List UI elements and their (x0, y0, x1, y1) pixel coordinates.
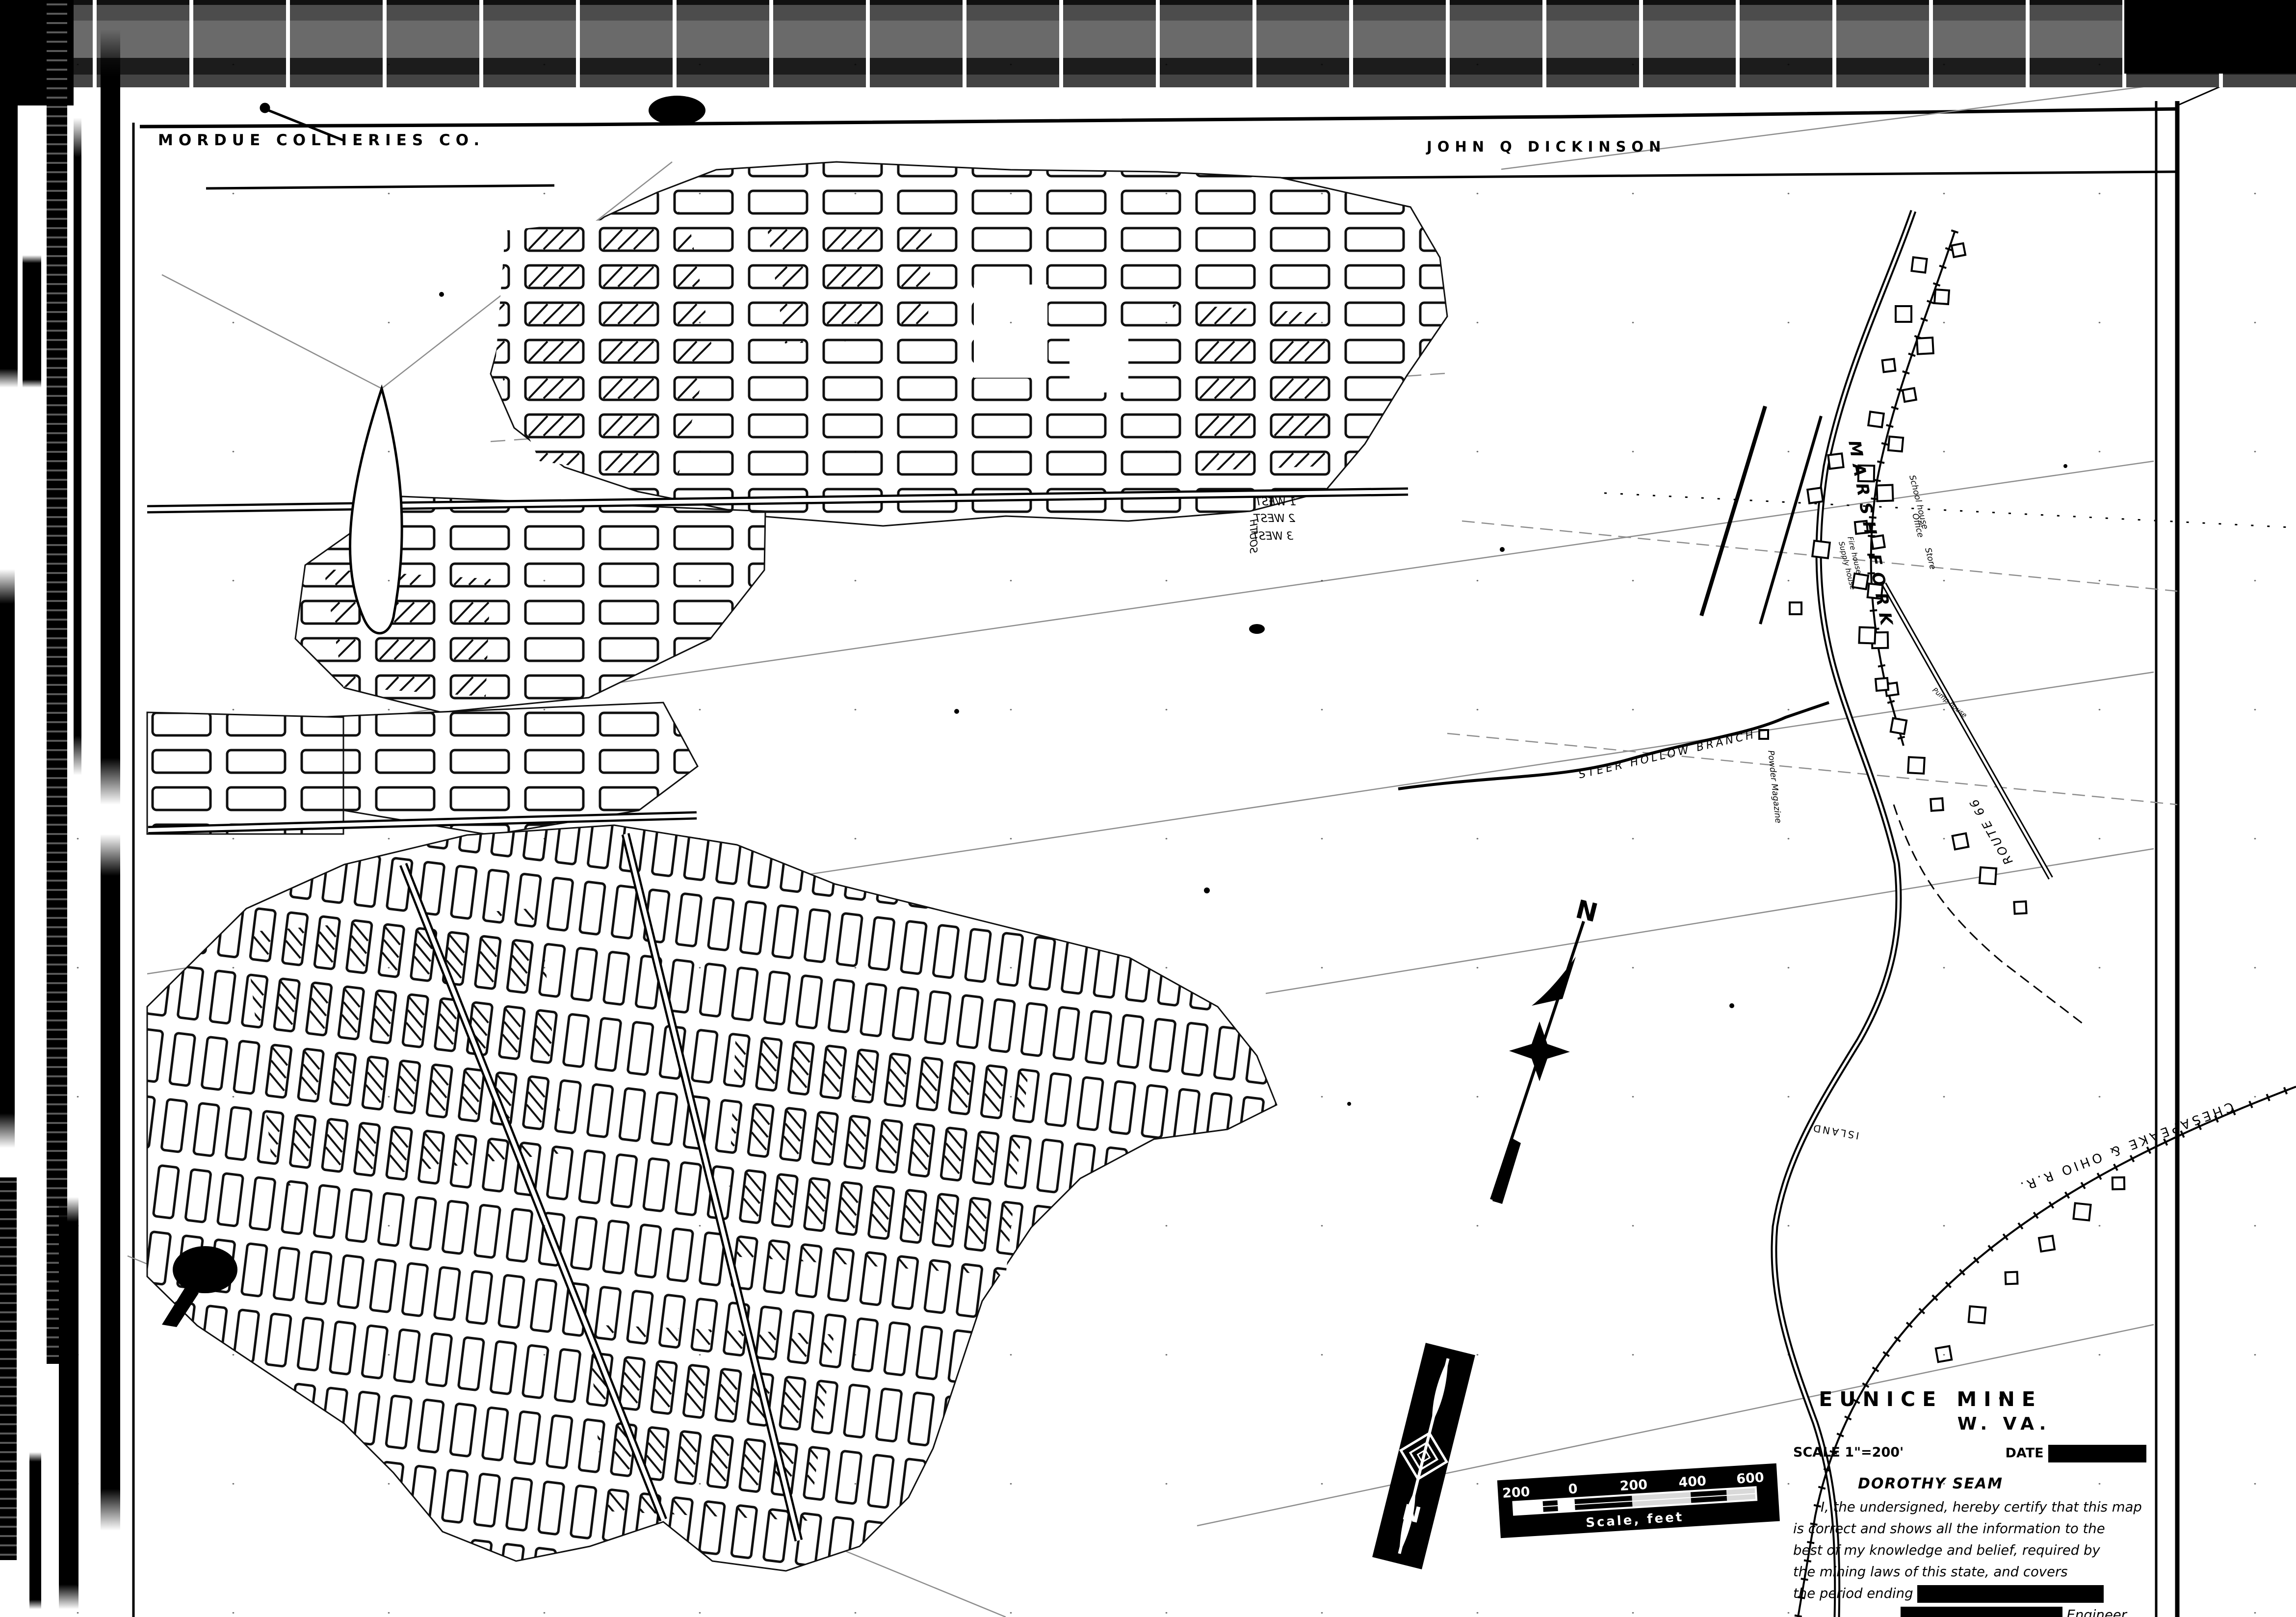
building-square (1876, 678, 1888, 691)
map-labels: MARSH FORK STEER HOLLOW BRANCH CHESAPEAK… (1248, 439, 2236, 1195)
film-edge-bar (23, 255, 41, 388)
building-square (1917, 338, 1933, 354)
scale-label: SCALE 1"=200' (1793, 1445, 1904, 1462)
building-square (1891, 718, 1906, 734)
film-edge-bar (101, 29, 120, 805)
building-square (1790, 602, 1801, 614)
building-square (1807, 488, 1823, 503)
scale-bar: 200 0 200 400 600 Scale, feet (1497, 1463, 1780, 1539)
compass-stamp: N (1372, 1343, 1475, 1569)
route-66-road (1884, 584, 2051, 878)
building-square (1859, 627, 1875, 643)
cert-line: best of my knowledge and belief, require… (1793, 1542, 2100, 1558)
building-square (1980, 867, 1996, 884)
contour-lens (350, 389, 402, 633)
building-square (1934, 289, 1949, 304)
building-square (1903, 388, 1916, 402)
film-edge-bar (47, 0, 67, 1364)
building-square (1877, 485, 1893, 501)
cert-line: I, the undersigned, hereby certify that … (1821, 1499, 2142, 1515)
film-edge-bar (29, 1452, 41, 1609)
film-edge-bar (0, 74, 18, 388)
company-name: MORDUE COLLIERIES CO. (158, 131, 485, 149)
powder-magazine-label: Powder Magazine (1766, 750, 1783, 824)
building-square (1931, 798, 1943, 811)
map-drawing: MARSH FORK STEER HOLLOW BRANCH CHESAPEAK… (0, 0, 2296, 1617)
building-square (1812, 541, 1830, 558)
building-square (1936, 1346, 1952, 1362)
building-square (1882, 359, 1896, 372)
scale-tick: 600 (1736, 1470, 1764, 1487)
north-arrow-n-label: N (1573, 895, 1601, 929)
film-edge-bar (0, 569, 15, 1148)
mine-title: EUNICE MINE (1793, 1387, 2068, 1411)
building-square (1896, 306, 1911, 322)
cert-line: the mining laws of this state, and cover… (1793, 1564, 2068, 1580)
scale-tick: 200 (1619, 1477, 1648, 1494)
date-redaction (2048, 1445, 2146, 1462)
building-square (2014, 901, 2026, 913)
signature-redaction (1901, 1607, 2062, 1617)
date-label: DATE (2006, 1446, 2044, 1461)
title-block: EUNICE MINE W. VA. SCALE 1"=200' DATE DO… (1793, 1387, 2181, 1617)
film-edge-bar (101, 834, 120, 1531)
scanned-mine-map-sheet: MARSH FORK STEER HOLLOW BRANCH CHESAPEAK… (0, 0, 2296, 1617)
mine-state: W. VA. (1867, 1414, 2141, 1434)
building-square (1888, 437, 1903, 451)
building-square (1911, 257, 1927, 272)
entry-1-west-label: 1 WEST (1254, 496, 1296, 508)
building-square (1953, 834, 1969, 850)
building-square (1908, 757, 1925, 774)
period-redaction (1917, 1585, 2104, 1603)
film-strip-top (0, 0, 2296, 87)
building-square (2113, 1177, 2124, 1189)
mine-workings-upper (491, 162, 1447, 526)
building-square (1952, 243, 1965, 257)
mine-workings-middle (147, 496, 765, 835)
pump-house-label: Pump house (1931, 686, 1968, 720)
engineer-label: Engineer. (2067, 1607, 2130, 1617)
owner-name: JOHN Q DICKINSON (1427, 138, 1666, 155)
scale-tick: 400 (1678, 1474, 1707, 1490)
building-square (2039, 1236, 2055, 1252)
building-square (1969, 1306, 1986, 1324)
island-label: ISLAND (1810, 1122, 1860, 1142)
film-edge-bar (74, 118, 81, 775)
store-label: Store (1923, 547, 1937, 571)
building-square (1828, 453, 1843, 469)
scale-tick: 0 (1568, 1482, 1578, 1497)
film-edge-bar (59, 1197, 78, 1609)
bold-survey-lines (1604, 406, 2291, 624)
certification-text: I, the undersigned, hereby certify that … (1793, 1496, 2181, 1617)
entry-south-label: SOUTH (1248, 519, 1259, 553)
building-square (1868, 412, 1884, 427)
seam-name: DOROTHY SEAM (1793, 1475, 2068, 1492)
film-corner-top-right (2124, 0, 2296, 74)
cert-line: is correct and shows all the information… (1793, 1521, 2105, 1537)
film-edge-bar (0, 1177, 17, 1560)
scale-tick: 200 (1502, 1485, 1530, 1501)
railroad-label: CHESAPEAKE & OHIO R.R. (2016, 1099, 2236, 1195)
building-square (2006, 1272, 2018, 1284)
building-square (2073, 1203, 2090, 1220)
cert-line: the period ending (1793, 1586, 1913, 1601)
